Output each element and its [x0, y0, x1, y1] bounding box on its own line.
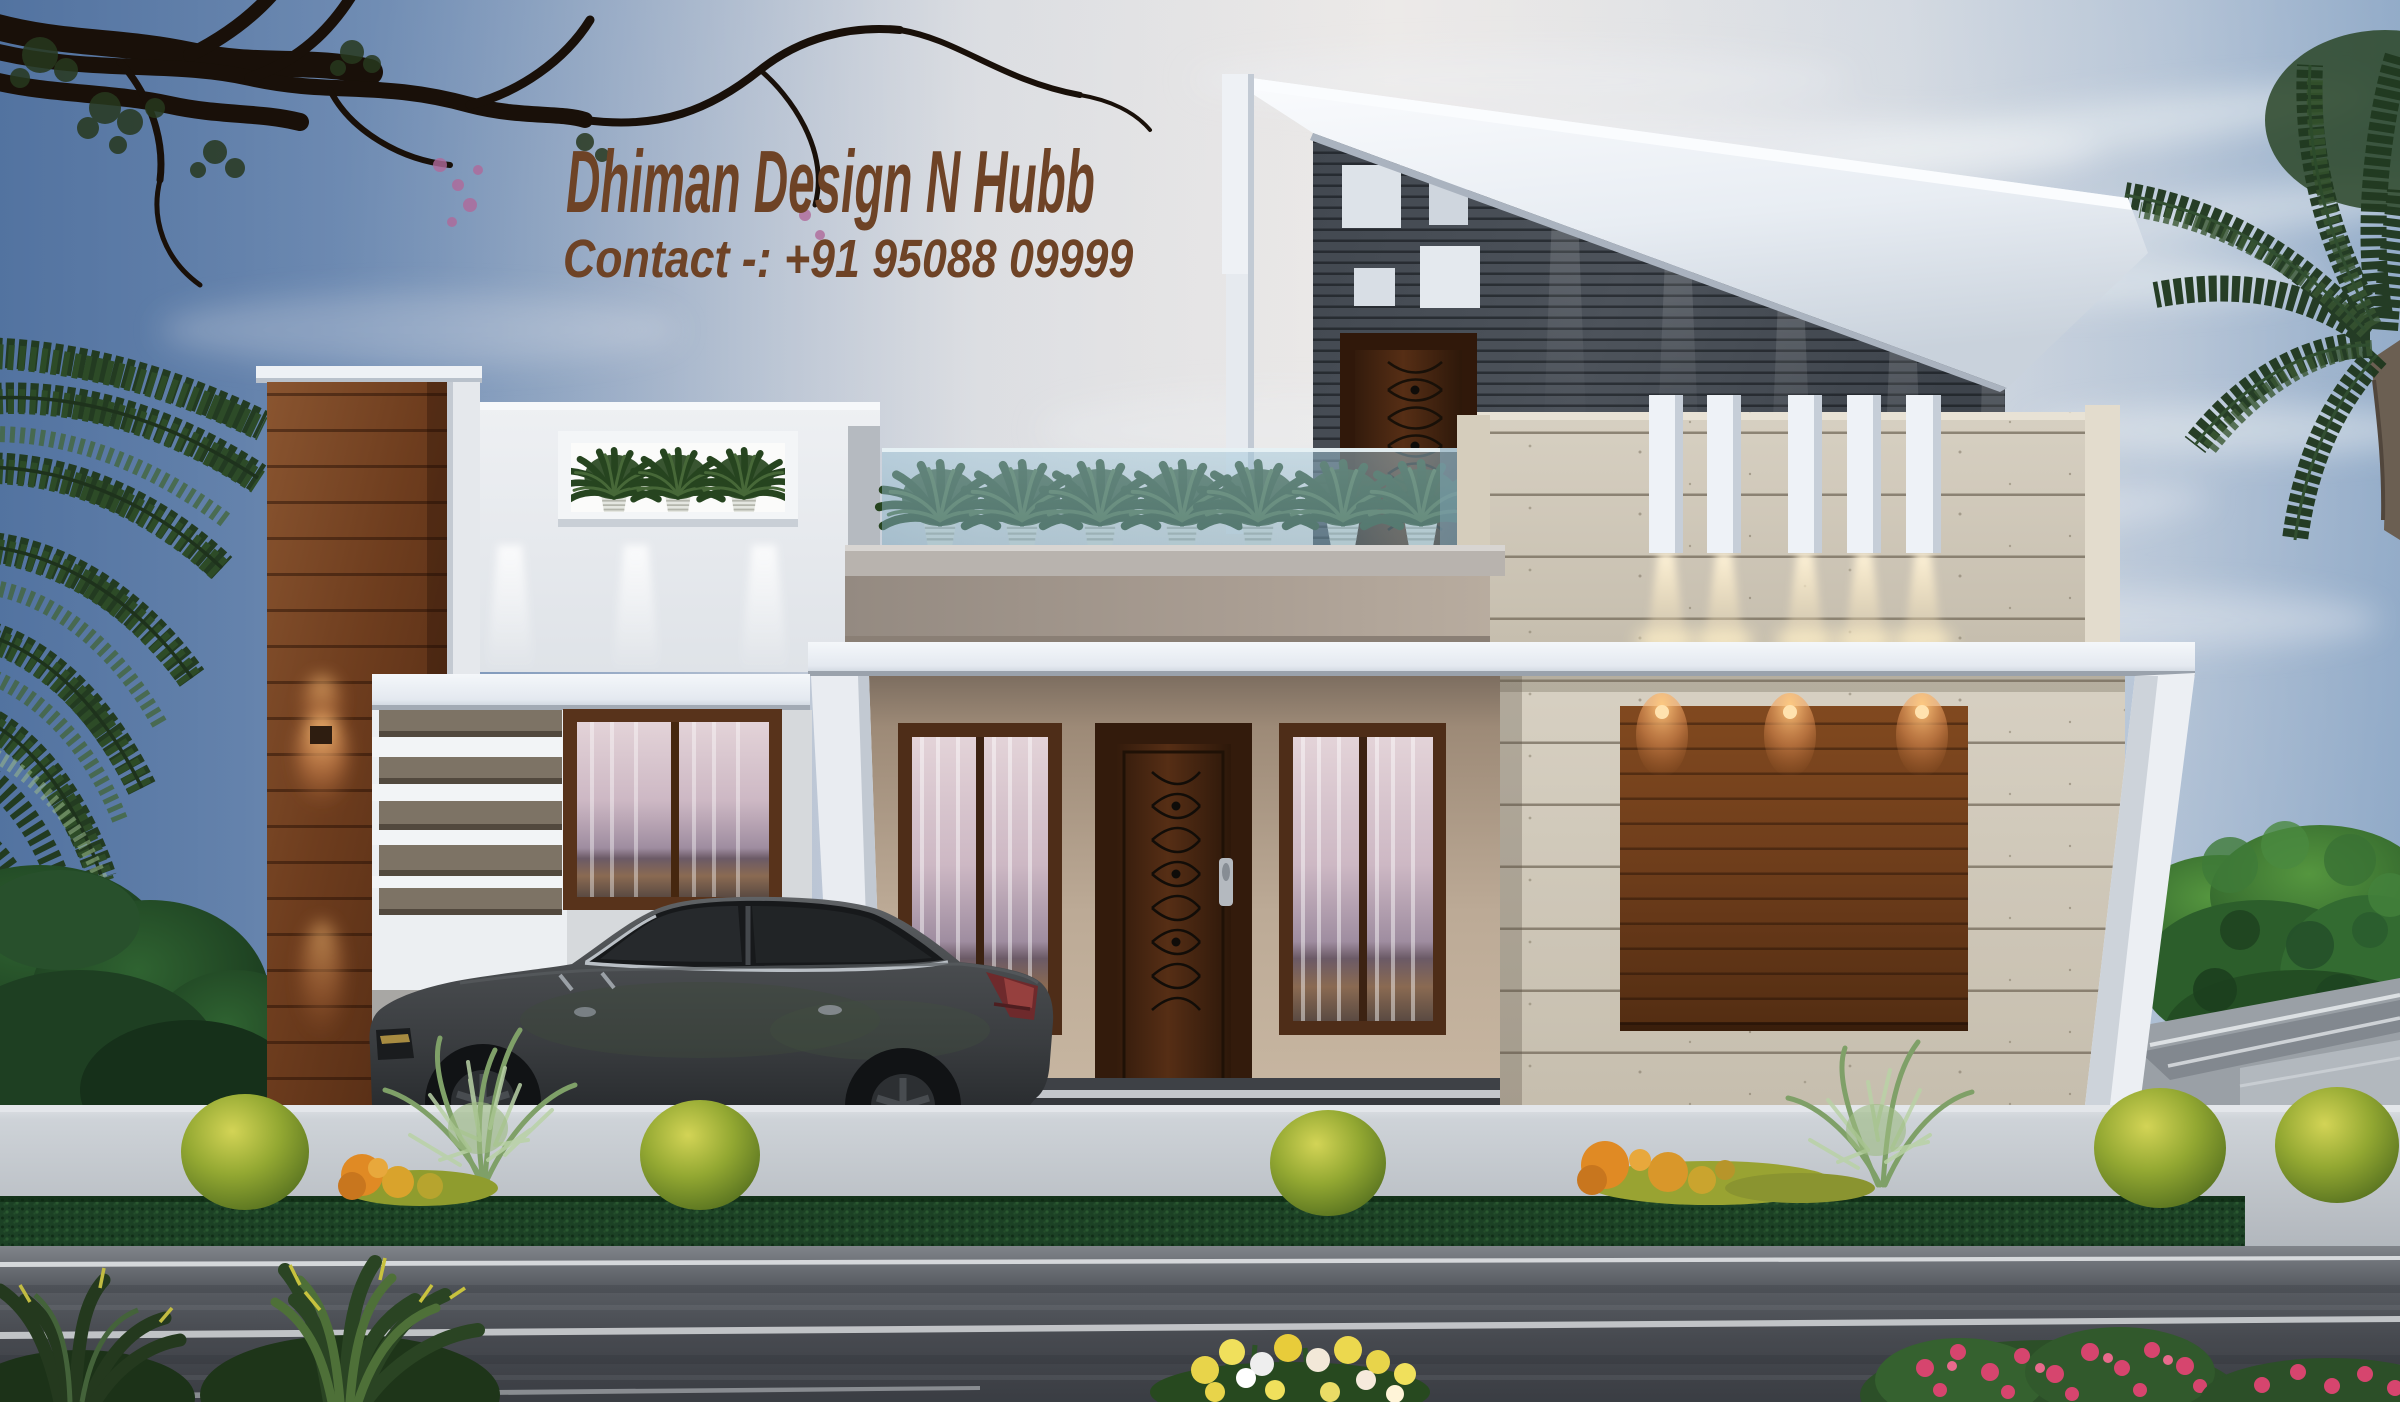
- svg-text:Contact -: +91 95088 09999: Contact -: +91 95088 09999: [563, 228, 1134, 289]
- svg-text:Dhiman Design N Hubb: Dhiman Design N Hubb: [566, 132, 1095, 230]
